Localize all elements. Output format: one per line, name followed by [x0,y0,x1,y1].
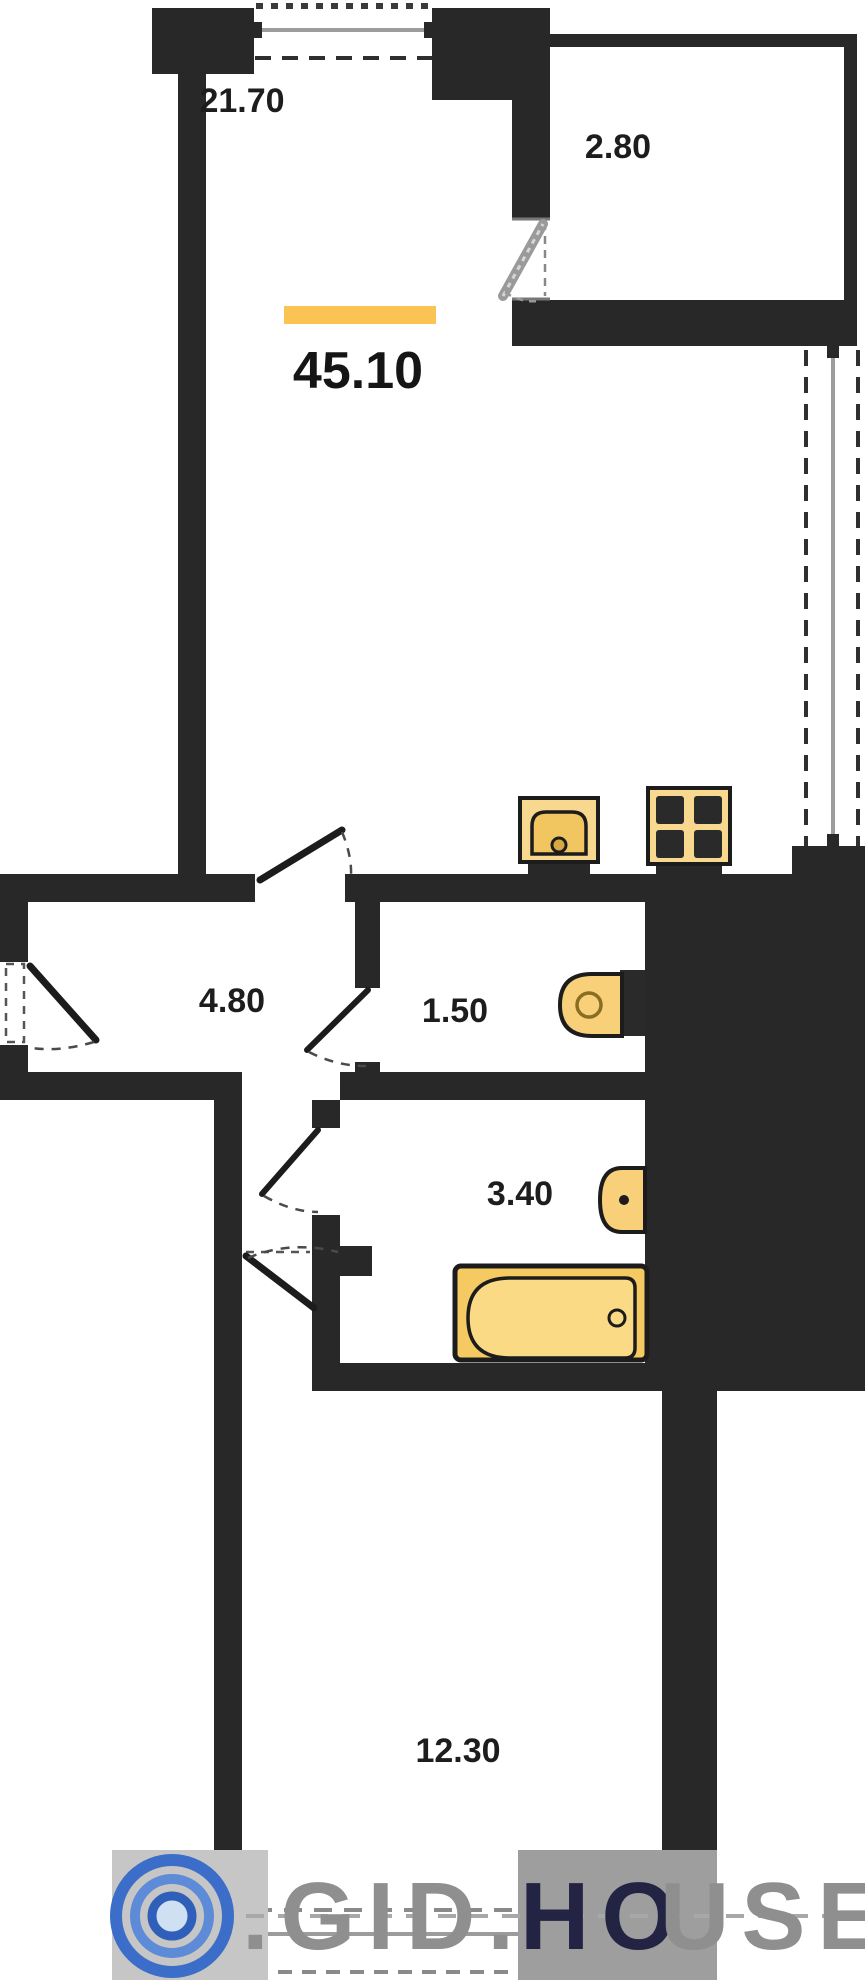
bathtub-icon [455,1266,647,1360]
sink-drain [552,838,566,852]
wall [0,874,255,902]
bathroom-area-label: 3.40 [487,1175,553,1213]
window-endcap [827,346,839,358]
floor-plan-page: 21.70 2.80 45.10 4.80 1.50 3.40 12.30 .G… [0,0,865,1980]
top-window-icon [248,6,438,58]
logo-ring-inner [152,1896,192,1936]
stove-burner [694,830,722,858]
toilet-bowl [560,974,622,1036]
bedroom-area-label: 12.30 [415,1732,500,1770]
washbasin-icon [600,1168,645,1232]
wall [0,1072,242,1100]
wall [152,8,254,74]
stove-burner [656,796,684,824]
wall-balcony-right [844,34,857,304]
balcony-room [562,47,844,300]
window-endcap [424,22,438,38]
wall-bathroom-bottom [312,1363,697,1391]
watermark-text-gid: .GID. [242,1863,526,1970]
stove-burner [656,830,684,858]
wall-wc-bottom [340,1072,697,1100]
wall-wc-left [355,902,380,988]
wall [432,8,550,100]
wall-stub [340,1246,372,1276]
stove-burner [694,796,722,824]
window-endcap [248,22,262,38]
wall-window-stub [792,846,865,874]
wall [512,100,550,218]
wall [0,874,28,962]
toilet-icon [560,970,645,1036]
watermark-text-use: USE [660,1863,865,1970]
wall-bedroom-right [662,1391,717,1896]
wall-balcony-bottom [512,300,857,346]
washbasin-drain [619,1195,629,1205]
floor-plan-svg: 21.70 2.80 45.10 4.80 1.50 3.40 12.30 .G… [0,0,865,1980]
kitchen-sink-icon [520,798,598,874]
total-area-label: 45.10 [293,342,423,400]
wall-bathroom-left [312,1215,340,1363]
watermark: .GID. HO USE [112,1850,865,1980]
door-frame-dashes [6,964,24,1042]
wall [214,1100,242,1980]
hallway-area-label: 4.80 [199,982,265,1020]
wall-bathroom-left [312,1100,340,1128]
bedroom-room [242,1320,662,1905]
wc-area-label: 1.50 [422,992,488,1030]
total-area-bar [284,306,436,324]
wall-right-mass [645,874,865,1391]
right-window-icon [806,346,858,846]
window-endcap [827,834,839,846]
living-room-area-label: 21.70 [199,82,284,120]
gid-house-logo-icon [116,1860,228,1972]
stove-4-burner-icon [648,788,730,874]
wall [178,74,206,874]
wall-balcony-top [550,34,857,47]
balcony-area-label: 2.80 [585,128,651,166]
